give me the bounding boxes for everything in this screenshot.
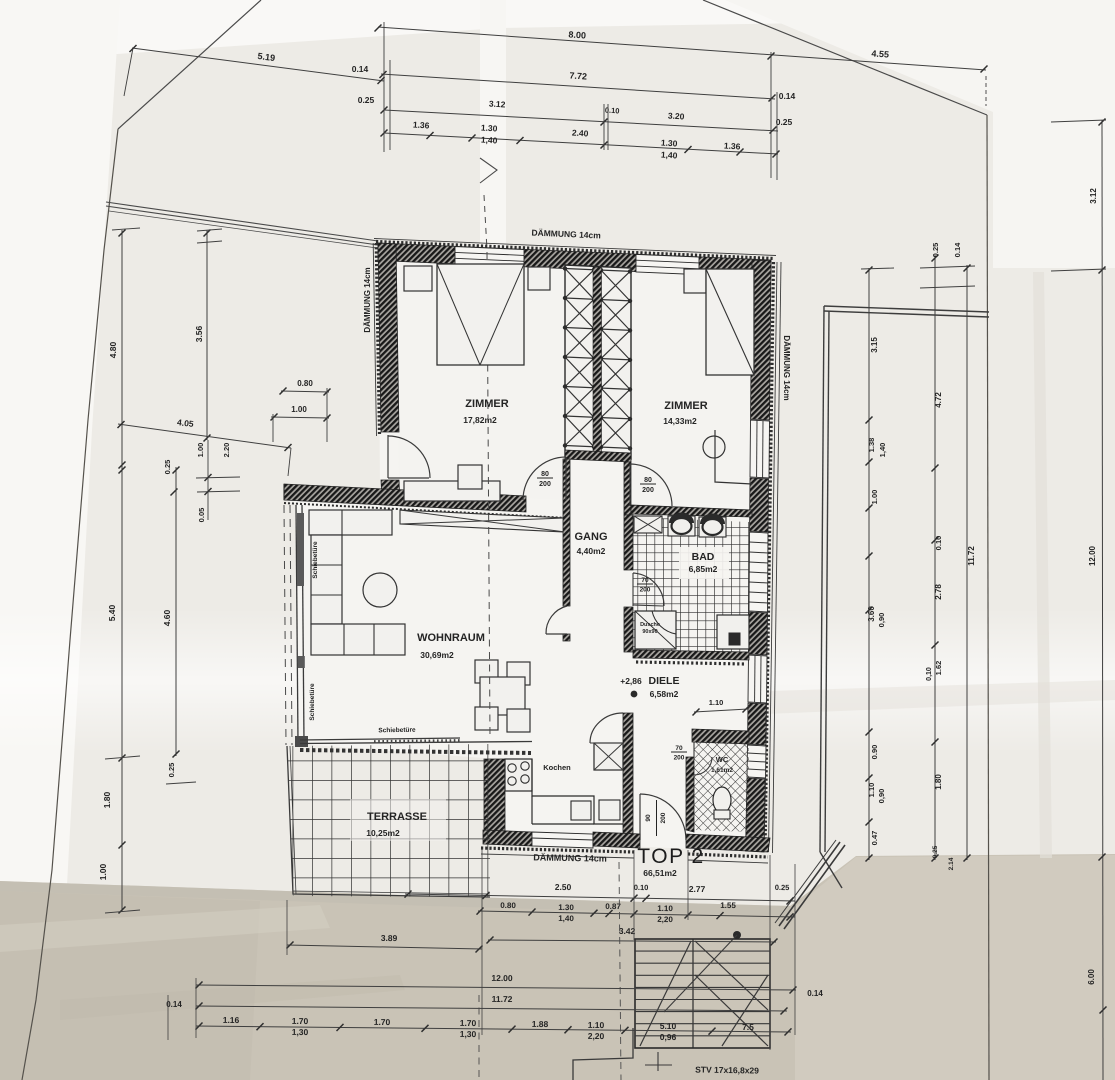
svg-text:14,33m2: 14,33m2: [663, 416, 697, 426]
svg-text:90: 90: [645, 814, 652, 822]
svg-text:0.14: 0.14: [953, 242, 962, 257]
svg-text:0.25: 0.25: [358, 95, 375, 105]
svg-text:1.80: 1.80: [102, 791, 112, 808]
svg-text:1,61m2: 1,61m2: [711, 767, 733, 774]
svg-text:5.40: 5.40: [107, 604, 117, 621]
svg-text:200: 200: [640, 587, 651, 594]
svg-text:BAD: BAD: [692, 551, 715, 563]
svg-text:DÄMMUNG 14cm: DÄMMUNG 14cm: [782, 335, 791, 400]
svg-text:0.14: 0.14: [807, 989, 823, 998]
svg-text:3.56: 3.56: [194, 325, 204, 342]
svg-text:4.80: 4.80: [108, 341, 118, 358]
svg-text:1.10: 1.10: [867, 783, 876, 798]
svg-text:0,96: 0,96: [660, 1032, 677, 1042]
svg-text:STV 17x16,8x29: STV 17x16,8x29: [695, 1064, 759, 1075]
svg-text:1.00: 1.00: [196, 443, 205, 458]
svg-text:DIELE: DIELE: [649, 675, 680, 687]
svg-text:ZIMMER: ZIMMER: [465, 398, 508, 410]
svg-text:3.60: 3.60: [867, 606, 876, 622]
svg-text:2.20: 2.20: [222, 443, 231, 458]
svg-text:0.05: 0.05: [197, 508, 206, 523]
svg-text:Dusche: Dusche: [640, 622, 660, 628]
svg-text:1.16: 1.16: [223, 1015, 240, 1025]
svg-text:0.14: 0.14: [166, 1000, 182, 1009]
svg-text:12.00: 12.00: [491, 973, 513, 983]
svg-text:11.72: 11.72: [492, 994, 513, 1004]
svg-text:1.10: 1.10: [588, 1020, 605, 1030]
svg-text:Kochen: Kochen: [543, 763, 571, 772]
svg-text:+2,86: +2,86: [620, 676, 642, 686]
svg-text:4.72: 4.72: [934, 392, 943, 408]
svg-text:0,10: 0,10: [926, 667, 933, 681]
svg-text:70: 70: [641, 577, 649, 584]
svg-text:0.25: 0.25: [932, 845, 939, 858]
svg-text:90x90: 90x90: [642, 629, 657, 635]
svg-text:TOP 2: TOP 2: [637, 845, 704, 868]
svg-text:0.90: 0.90: [870, 745, 879, 760]
svg-text:30,69m2: 30,69m2: [420, 650, 454, 660]
svg-text:2.77: 2.77: [689, 884, 706, 894]
svg-text:3.42: 3.42: [619, 926, 636, 936]
svg-text:0.14: 0.14: [779, 91, 796, 101]
svg-text:1.36: 1.36: [724, 141, 741, 152]
svg-text:4,40m2: 4,40m2: [577, 546, 606, 556]
svg-text:66,51m2: 66,51m2: [643, 868, 677, 878]
svg-text:0.10: 0.10: [634, 883, 649, 892]
svg-text:2.78: 2.78: [934, 584, 943, 600]
svg-text:4.55: 4.55: [871, 48, 889, 59]
svg-text:0,90: 0,90: [877, 789, 886, 804]
svg-text:6,85m2: 6,85m2: [689, 564, 718, 574]
svg-text:1.36: 1.36: [413, 120, 430, 131]
svg-text:1,40: 1,40: [558, 914, 574, 923]
svg-text:ZIMMER: ZIMMER: [664, 400, 707, 412]
svg-text:1.10: 1.10: [657, 904, 673, 913]
svg-text:0.80: 0.80: [297, 379, 313, 388]
svg-text:0.10: 0.10: [605, 106, 620, 116]
svg-text:3.12: 3.12: [1089, 188, 1098, 204]
svg-text:1.38: 1.38: [867, 438, 876, 453]
svg-text:Schiebetüre: Schiebetüre: [378, 727, 416, 735]
svg-text:0.25: 0.25: [167, 763, 176, 778]
svg-text:1,30: 1,30: [460, 1029, 477, 1039]
svg-text:1,40: 1,40: [661, 150, 678, 161]
svg-text:5.19: 5.19: [257, 51, 276, 63]
svg-text:4.05: 4.05: [177, 417, 195, 429]
svg-text:1.70: 1.70: [374, 1017, 391, 1027]
svg-text:7.72: 7.72: [569, 70, 587, 81]
svg-text:2,20: 2,20: [588, 1031, 605, 1041]
svg-text:0.25: 0.25: [775, 883, 790, 892]
svg-text:6.00: 6.00: [1087, 969, 1096, 985]
svg-text:0,90: 0,90: [877, 613, 886, 628]
svg-text:80: 80: [644, 477, 652, 484]
svg-text:1.70: 1.70: [460, 1018, 477, 1028]
svg-text:1.30: 1.30: [481, 123, 498, 134]
svg-text:2.50: 2.50: [555, 882, 572, 892]
svg-text:1.70: 1.70: [292, 1016, 309, 1026]
svg-text:5.10: 5.10: [660, 1021, 677, 1031]
svg-text:1.55: 1.55: [720, 901, 736, 910]
svg-text:4.60: 4.60: [162, 609, 172, 626]
svg-text:2,20: 2,20: [657, 915, 673, 924]
svg-text:DÄMMUNG 14cm: DÄMMUNG 14cm: [363, 267, 372, 332]
svg-text:0.25: 0.25: [776, 117, 793, 127]
svg-text:1.80: 1.80: [934, 774, 943, 790]
svg-text:1.10: 1.10: [709, 698, 724, 707]
svg-text:12.00: 12.00: [1088, 545, 1097, 566]
svg-text:1.88: 1.88: [532, 1019, 549, 1029]
svg-text:1.00: 1.00: [291, 405, 307, 414]
svg-text:3.89: 3.89: [381, 933, 398, 943]
svg-text:200: 200: [642, 487, 654, 494]
svg-text:0.10: 0.10: [934, 536, 943, 551]
svg-text:3.12: 3.12: [489, 99, 506, 110]
svg-text:1,30: 1,30: [292, 1027, 309, 1037]
svg-text:70: 70: [675, 745, 683, 752]
svg-text:0.25: 0.25: [931, 243, 940, 258]
svg-text:GANG: GANG: [575, 531, 608, 543]
svg-text:TERRASSE: TERRASSE: [367, 811, 427, 823]
svg-text:1,40: 1,40: [481, 135, 498, 146]
svg-text:17,82m2: 17,82m2: [463, 415, 497, 425]
svg-text:0.47: 0.47: [870, 831, 879, 846]
svg-text:6,58m2: 6,58m2: [650, 689, 679, 699]
svg-text:0.25: 0.25: [163, 460, 172, 475]
svg-text:2.14: 2.14: [948, 857, 955, 870]
svg-text:200: 200: [660, 812, 667, 823]
svg-text:DÄMMUNG 14cm: DÄMMUNG 14cm: [533, 852, 607, 863]
svg-text:80: 80: [541, 471, 549, 478]
svg-text:10,25m2: 10,25m2: [366, 828, 400, 838]
svg-text:Schiebetüre: Schiebetüre: [309, 683, 316, 721]
svg-text:3.15: 3.15: [870, 337, 879, 353]
svg-text:3.20: 3.20: [668, 111, 685, 122]
svg-text:2.40: 2.40: [572, 128, 589, 139]
svg-text:1.30: 1.30: [661, 138, 678, 149]
svg-text:1.62: 1.62: [934, 661, 943, 676]
svg-text:1.00: 1.00: [98, 863, 108, 880]
svg-text:8.00: 8.00: [568, 29, 586, 40]
svg-text:1.30: 1.30: [558, 903, 574, 912]
svg-text:0.14: 0.14: [352, 64, 369, 74]
svg-text:7.5: 7.5: [742, 1022, 754, 1032]
svg-text:200: 200: [674, 755, 685, 762]
svg-text:11.72: 11.72: [967, 546, 976, 566]
svg-text:0.80: 0.80: [500, 901, 516, 910]
svg-text:1.00: 1.00: [870, 490, 879, 505]
svg-text:200: 200: [539, 481, 551, 488]
svg-text:WC: WC: [716, 755, 729, 764]
svg-text:WOHNRAUM: WOHNRAUM: [417, 632, 485, 644]
svg-text:Schiebetüre: Schiebetüre: [312, 541, 319, 579]
svg-text:1,40: 1,40: [878, 443, 887, 458]
